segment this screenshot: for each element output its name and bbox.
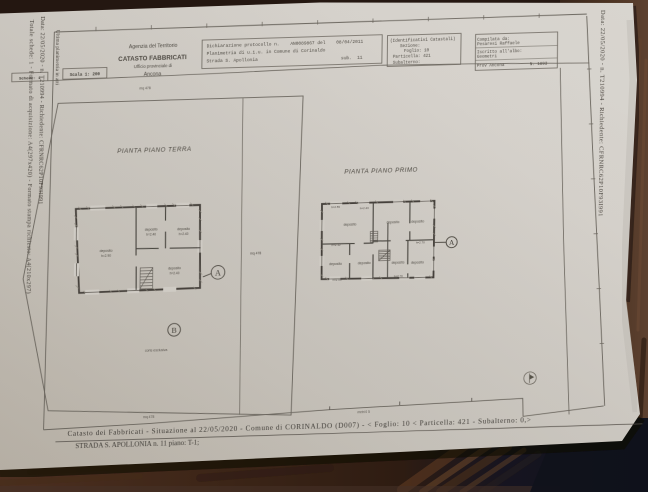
svg-text:h=2.55: h=2.55 — [331, 205, 340, 209]
svg-text:h=2.70: h=2.70 — [416, 240, 425, 244]
svg-text:deposito: deposito — [358, 261, 371, 265]
svg-text:Sezione:: Sezione: — [400, 44, 420, 50]
svg-text:B: B — [171, 326, 176, 335]
svg-text:deposito: deposito — [168, 266, 181, 270]
svg-text:Scala 1: 200: Scala 1: 200 — [70, 72, 101, 78]
svg-text:h=2.30: h=2.30 — [332, 243, 341, 247]
svg-text:Ultima planimetria in atti: Ultima planimetria in atti — [54, 30, 61, 86]
svg-text:deposito: deposito — [387, 220, 400, 224]
svg-text:N. 1893: N. 1893 — [530, 63, 548, 68]
svg-text:deposito: deposito — [411, 260, 424, 264]
svg-text:Foglio: 10: Foglio: 10 — [404, 48, 430, 54]
svg-text:deposito: deposito — [100, 249, 113, 253]
svg-text:h=2.05: h=2.05 — [332, 278, 341, 282]
svg-text:sub. 11: sub. 11 — [341, 55, 363, 62]
svg-text:Geometri: Geometri — [477, 54, 498, 60]
svg-text:corte esclusiva: corte esclusiva — [145, 348, 168, 353]
svg-text:A: A — [215, 268, 221, 277]
svg-text:deposito: deposito — [343, 222, 356, 226]
svg-text:deposito: deposito — [411, 219, 424, 223]
svg-text:mq 478: mq 478 — [250, 251, 261, 255]
svg-text:deposito: deposito — [177, 227, 190, 231]
svg-text:h=2.40: h=2.40 — [146, 232, 156, 236]
svg-text:mq 478: mq 478 — [139, 86, 150, 90]
svg-text:deposito: deposito — [329, 262, 342, 266]
svg-text:h=2.40: h=2.40 — [170, 271, 180, 275]
svg-text:Prov Ancona: Prov Ancona — [477, 64, 505, 69]
svg-text:deposito: deposito — [145, 227, 158, 231]
svg-text:deposito: deposito — [392, 260, 405, 264]
svg-text:metri 0 5: metri 0 5 — [357, 410, 370, 414]
svg-text:h=2.90: h=2.90 — [101, 254, 111, 258]
svg-text:h=2.70: h=2.70 — [394, 274, 403, 278]
svg-text:h=2.43: h=2.43 — [360, 206, 369, 210]
svg-text:mq 478: mq 478 — [143, 415, 154, 419]
svg-text:Ancona: Ancona — [144, 71, 162, 78]
svg-text:A: A — [449, 238, 455, 247]
svg-text:Subalterno:: Subalterno: — [393, 60, 421, 66]
svg-text:h=2.40: h=2.40 — [179, 232, 189, 236]
